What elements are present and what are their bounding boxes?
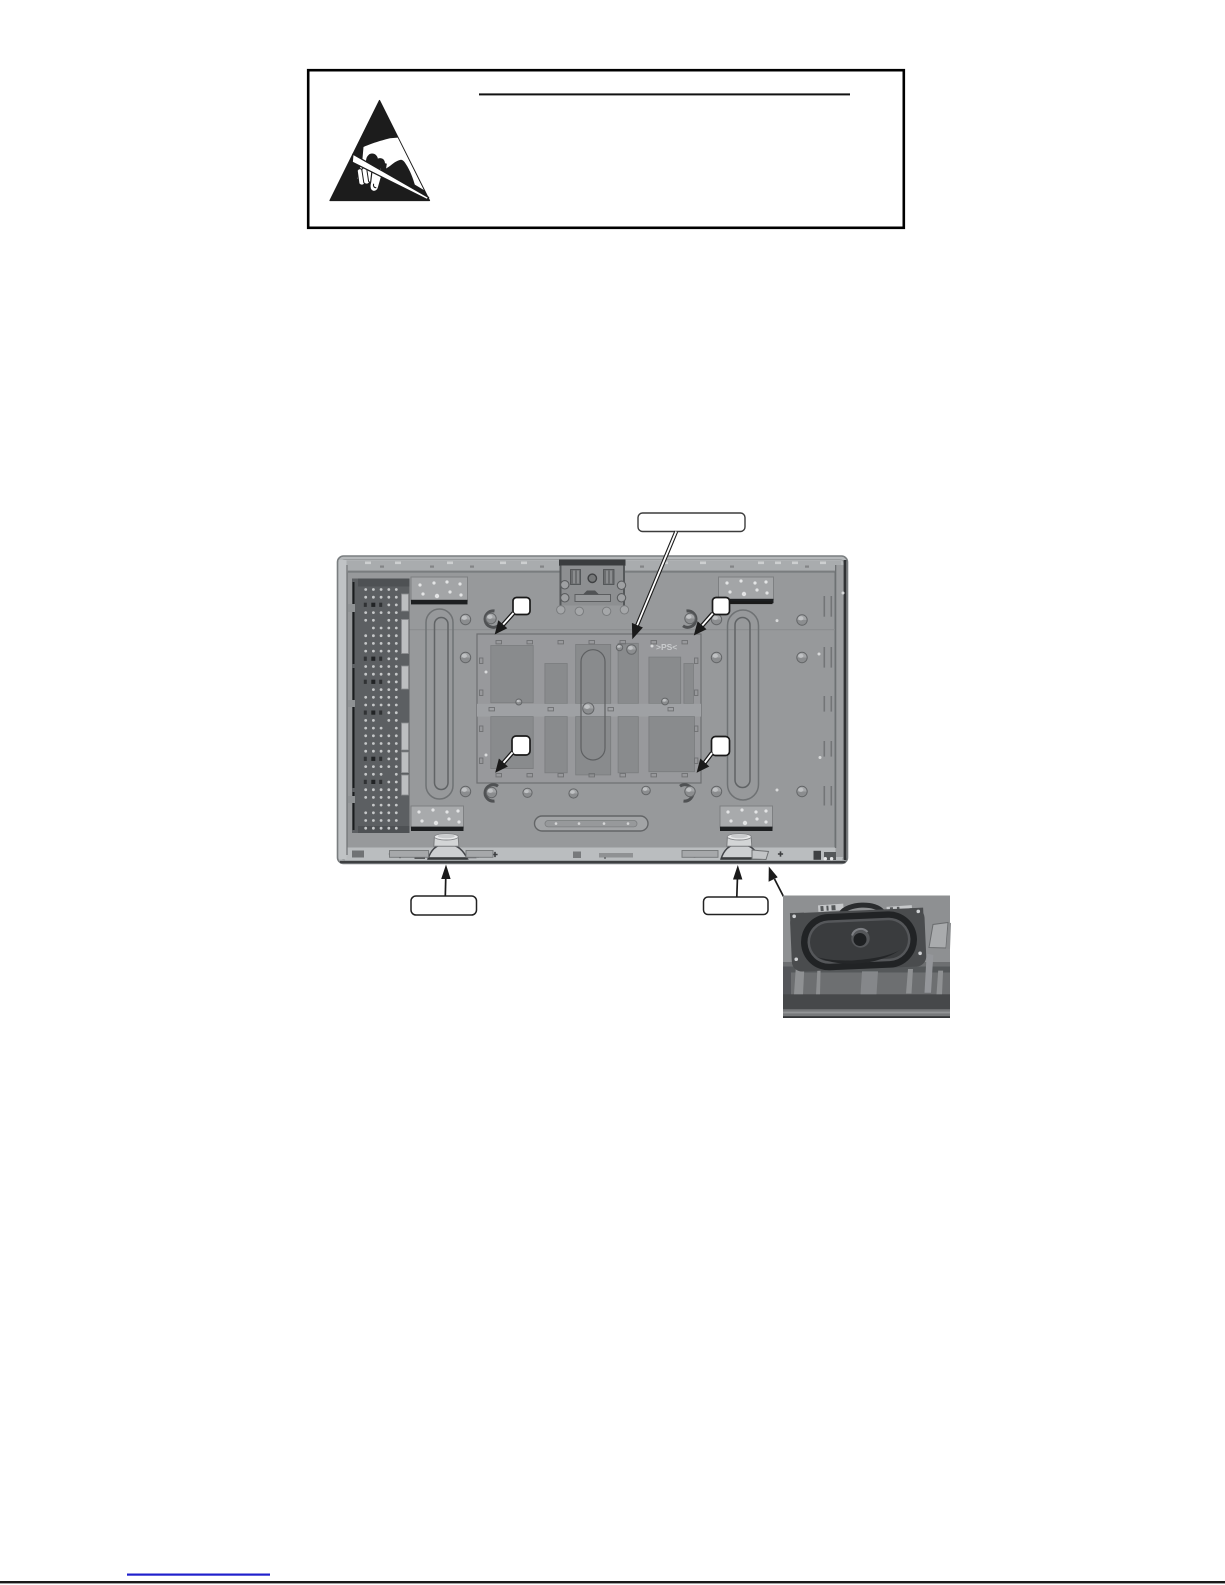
svg-text:>PS<: >PS< bbox=[656, 642, 677, 652]
